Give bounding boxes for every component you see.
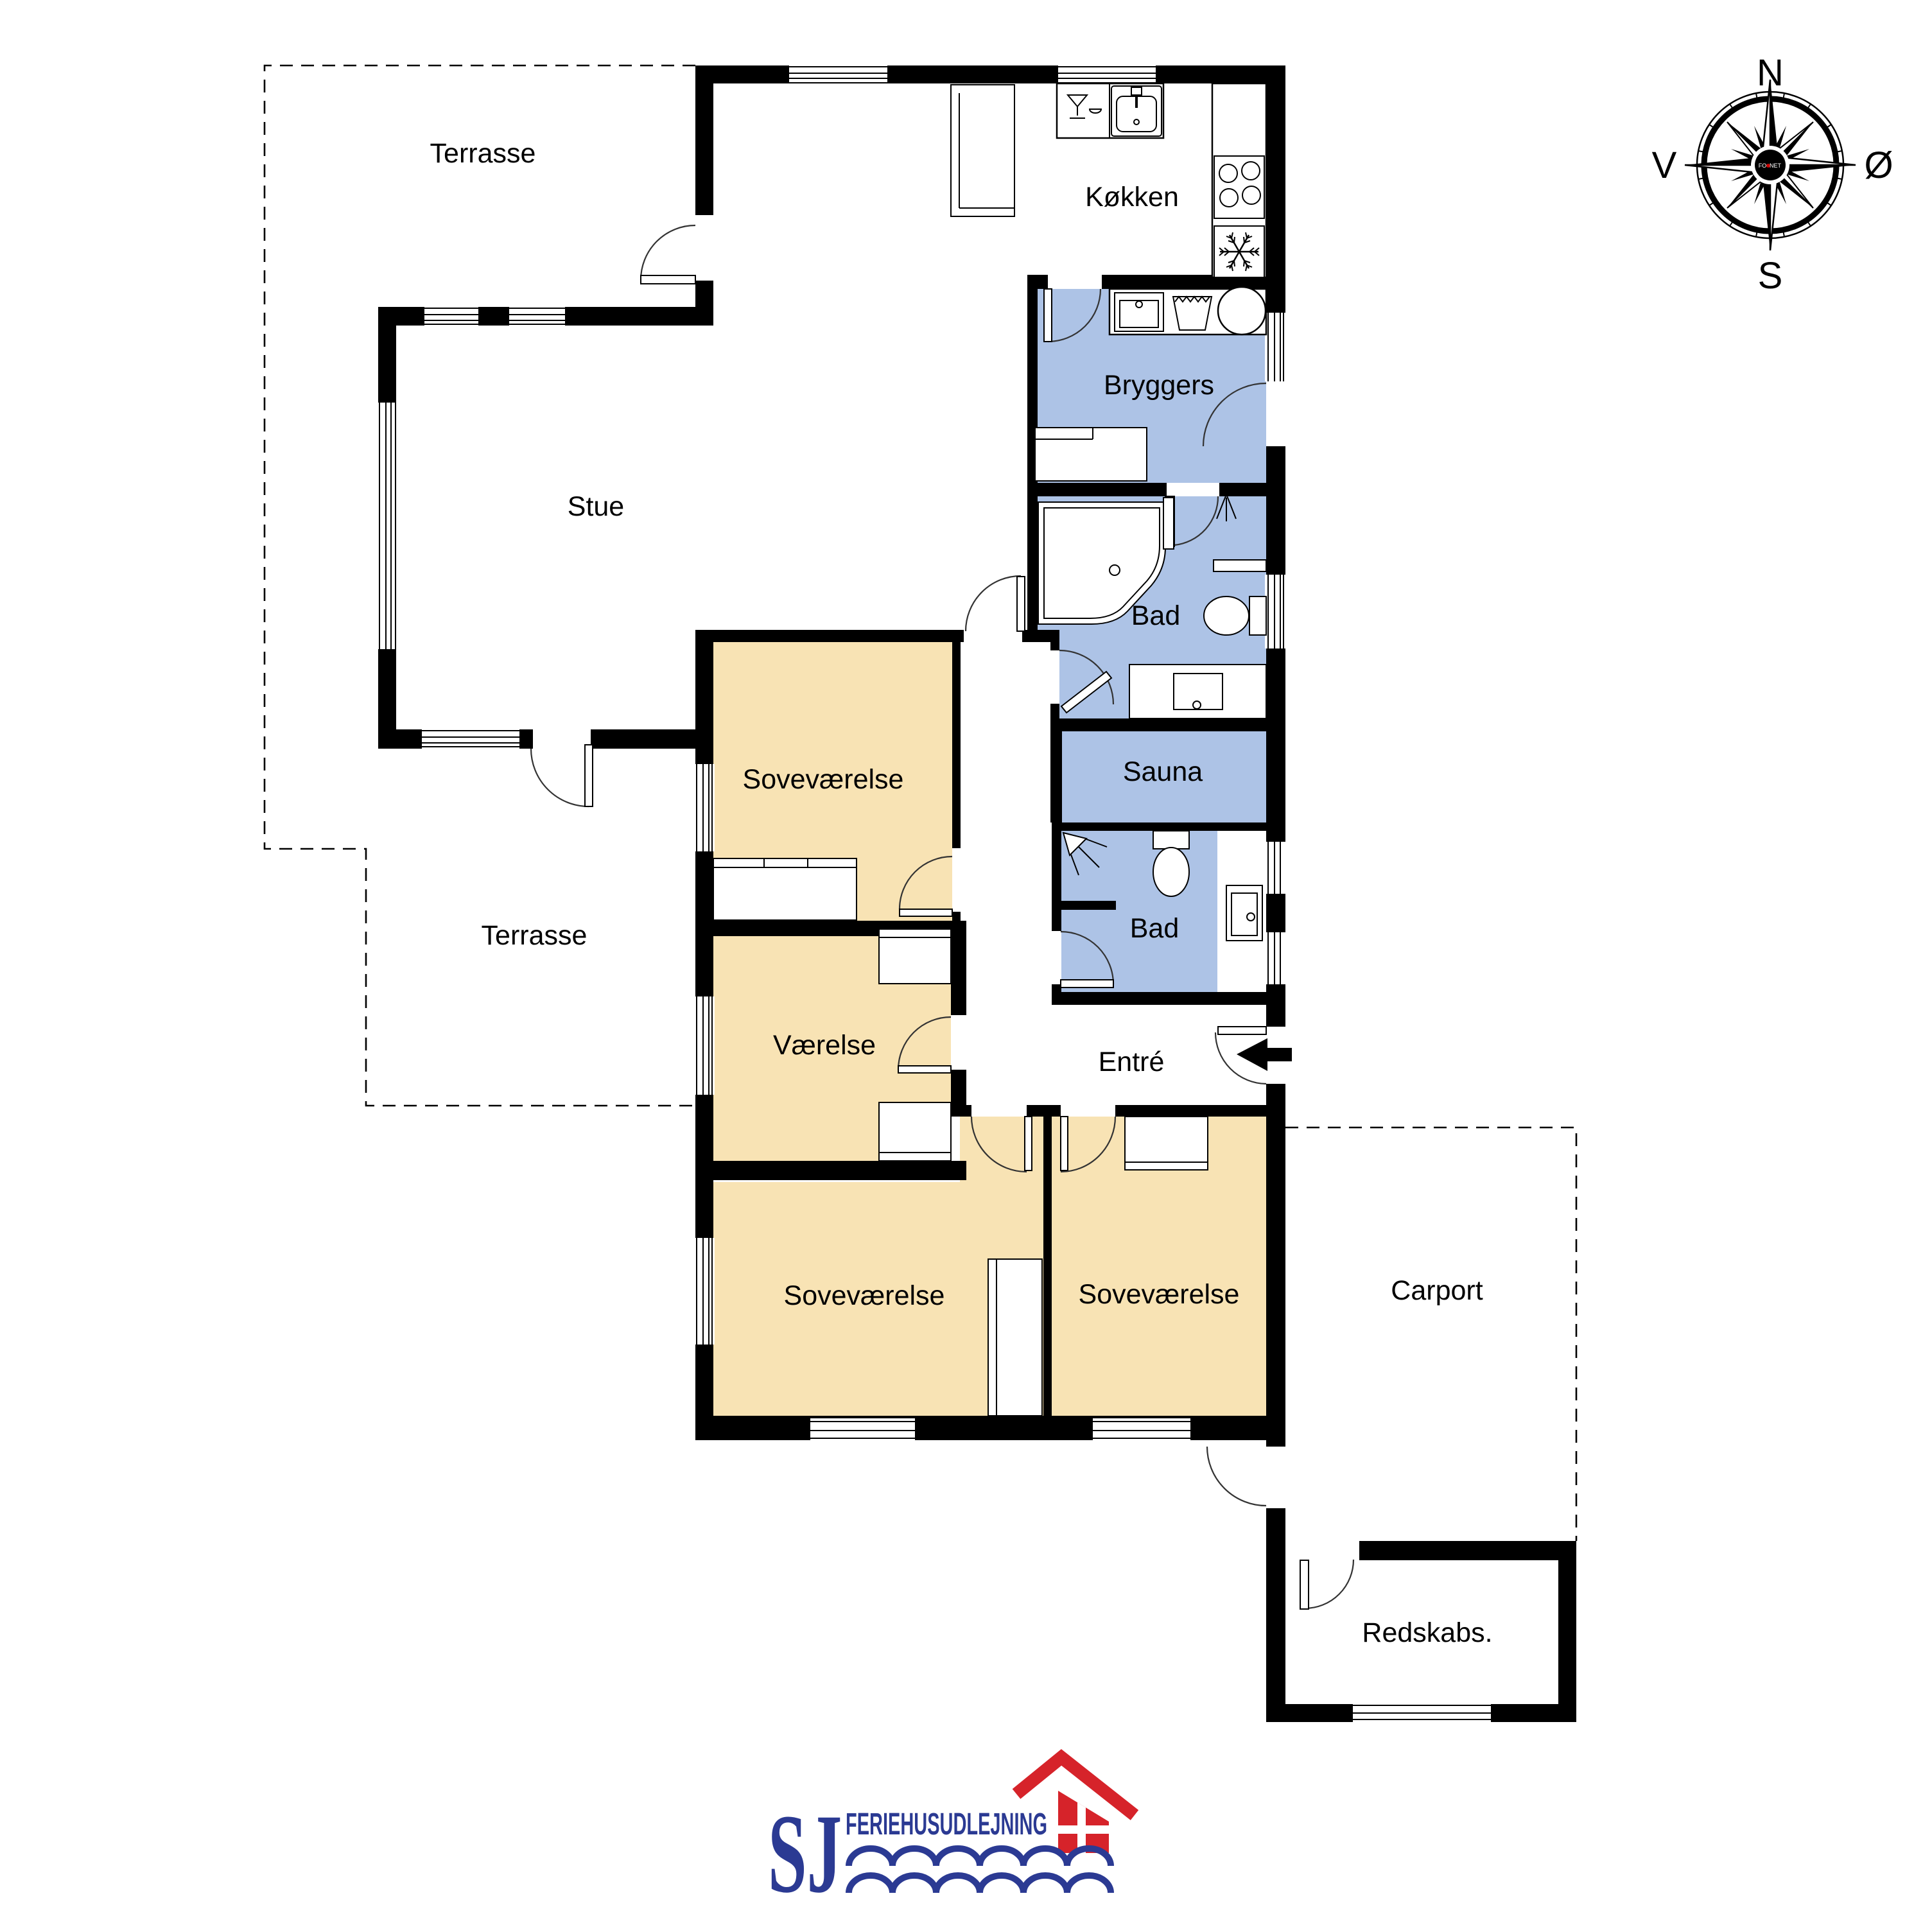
svg-text:Stue: Stue bbox=[568, 491, 624, 522]
svg-text:Bad: Bad bbox=[1131, 600, 1181, 631]
svg-text:S: S bbox=[1758, 255, 1783, 297]
svg-text:V: V bbox=[1652, 144, 1677, 186]
svg-text:Sauna: Sauna bbox=[1123, 756, 1203, 787]
svg-text:FERIEHUSUDLEJNING: FERIEHUSUDLEJNING bbox=[846, 1807, 1047, 1841]
svg-text:Soveværelse: Soveværelse bbox=[1079, 1279, 1240, 1310]
svg-text:Terrasse: Terrasse bbox=[482, 920, 587, 951]
svg-text:Ø: Ø bbox=[1864, 144, 1893, 186]
svg-text:Køkken: Køkken bbox=[1085, 182, 1179, 213]
svg-text:Terrasse: Terrasse bbox=[430, 138, 536, 169]
svg-text:Redskabs.: Redskabs. bbox=[1362, 1617, 1492, 1648]
svg-text:Carport: Carport bbox=[1391, 1275, 1483, 1306]
svg-text:N: N bbox=[1757, 52, 1784, 94]
svg-text:Entré: Entré bbox=[1099, 1047, 1165, 1077]
svg-text:Værelse: Værelse bbox=[773, 1030, 876, 1061]
svg-text:Soveværelse: Soveværelse bbox=[784, 1280, 945, 1311]
svg-text:SJ: SJ bbox=[768, 1791, 842, 1917]
svg-text:NET: NET bbox=[1770, 162, 1782, 169]
svg-text:Bryggers: Bryggers bbox=[1104, 370, 1214, 401]
svg-text:Bad: Bad bbox=[1130, 913, 1179, 944]
svg-text:Soveværelse: Soveværelse bbox=[743, 764, 904, 795]
svg-text:FO: FO bbox=[1759, 162, 1767, 169]
